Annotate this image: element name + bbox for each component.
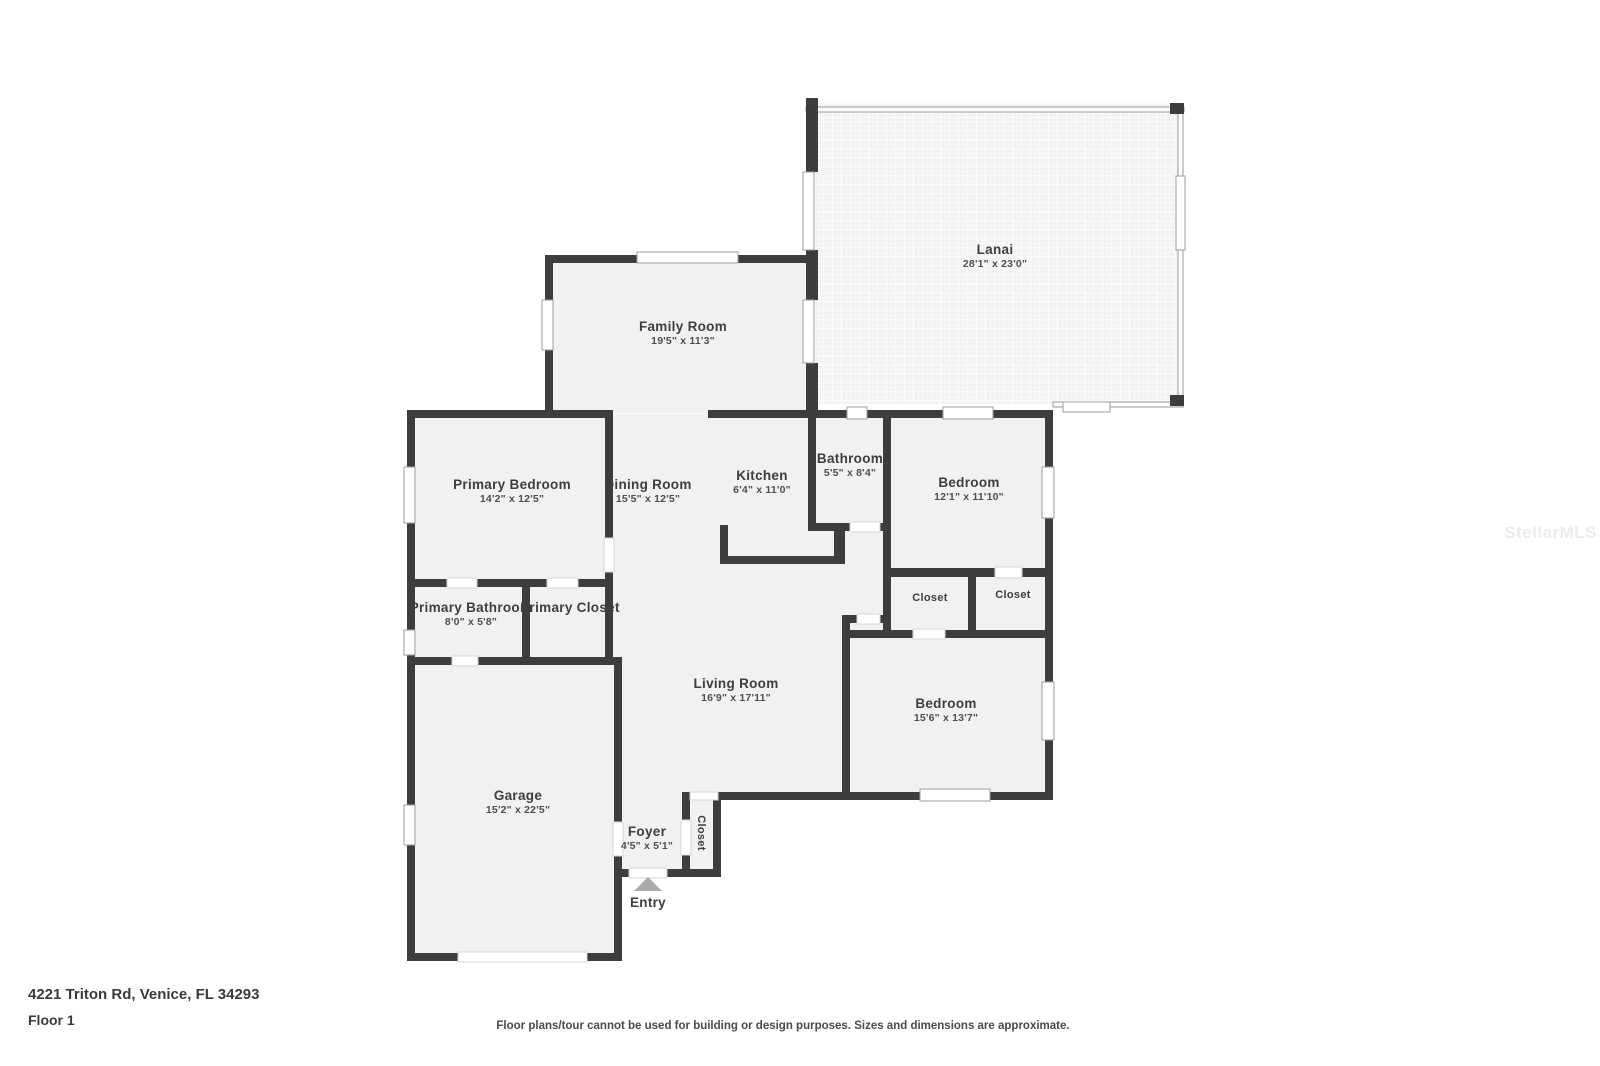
entry-arrow-icon	[634, 877, 662, 891]
room-dims-lanai: 28'1" x 23'0"	[963, 258, 1027, 270]
room-dims-primary-bedroom: 14'2" x 12'5"	[480, 493, 544, 505]
room-label-closet-foyer: Closet	[695, 815, 707, 850]
room-label-closet-hall-right: Closet	[995, 589, 1030, 601]
room-label-dining-room: Dining Room	[604, 477, 691, 492]
room-label-primary-bathroom: Primary Bathroom	[410, 600, 533, 615]
room-dims-bathroom: 5'5" x 8'4"	[824, 467, 876, 479]
watermark-stellar-mls: StellarMLS	[1504, 523, 1597, 542]
entry-label: Entry	[630, 895, 666, 910]
room-label-kitchen: Kitchen	[736, 468, 788, 483]
room-label-bedroom-2: Bedroom	[915, 696, 976, 711]
room-dims-garage: 15'2" x 22'5"	[486, 804, 550, 816]
room-dims-dining-room: 15'5" x 12'5"	[616, 493, 680, 505]
room-dims-bedroom-1: 12'1" x 11'10"	[934, 491, 1004, 503]
room-dims-primary-bathroom: 8'0" x 5'8"	[445, 616, 497, 628]
room-label-living-room: Living Room	[693, 676, 778, 691]
address-text: 4221 Triton Rd, Venice, FL 34293	[28, 986, 260, 1003]
room-label-bathroom: Bathroom	[817, 451, 883, 466]
footer: 4221 Triton Rd, Venice, FL 34293 Floor 1…	[28, 986, 1070, 1032]
disclaimer-text: Floor plans/tour cannot be used for buil…	[496, 1020, 1069, 1032]
room-dims-foyer: 4'5" x 5'1"	[621, 840, 673, 852]
room-label-primary-bedroom: Primary Bedroom	[453, 477, 571, 492]
floor-plan-page: Lanai 28'1" x 23'0" Family Room 19'5" x …	[0, 0, 1600, 1066]
room-dims-family-room: 19'5" x 11'3"	[651, 335, 715, 347]
floor-plan-drawing: Lanai 28'1" x 23'0" Family Room 19'5" x …	[0, 0, 1600, 1066]
room-label-lanai: Lanai	[977, 242, 1014, 257]
room-label-foyer: Foyer	[628, 824, 667, 839]
floor-label: Floor 1	[28, 1012, 75, 1028]
room-label-primary-closet: Primary Closet	[520, 600, 620, 615]
room-dims-bedroom-2: 15'6" x 13'7"	[914, 712, 978, 724]
entry-marker: Entry	[630, 877, 666, 910]
room-label-bedroom-1: Bedroom	[938, 475, 999, 490]
room-label-family-room: Family Room	[639, 319, 727, 334]
room-dims-living-room: 16'9" x 17'11"	[701, 692, 771, 704]
room-dims-kitchen: 6'4" x 11'0"	[733, 484, 791, 496]
room-label-garage: Garage	[494, 788, 543, 803]
room-fills	[411, 103, 1180, 957]
room-label-closet-hall-left: Closet	[912, 592, 947, 604]
